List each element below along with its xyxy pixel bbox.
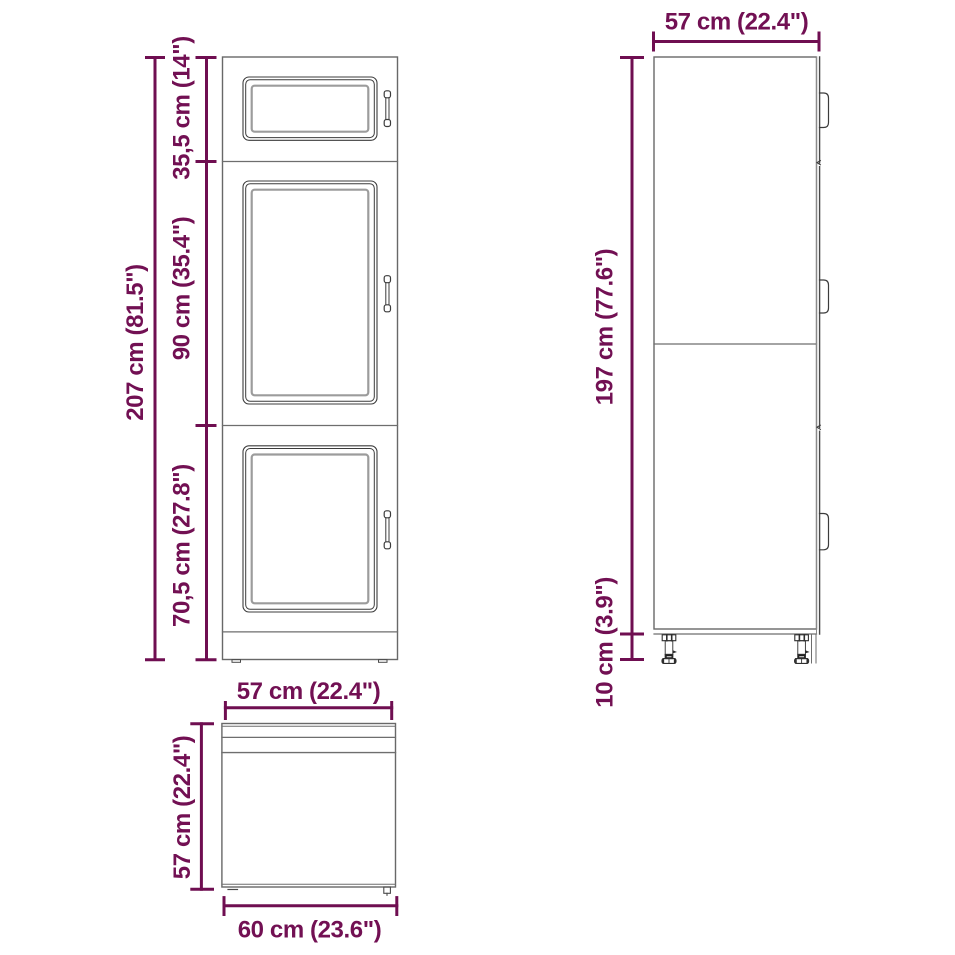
- svg-text:70,5 cm (27.8"): 70,5 cm (27.8"): [169, 464, 196, 627]
- svg-text:57 cm (22.4"): 57 cm (22.4"): [237, 678, 381, 705]
- svg-text:197 cm (77.6"): 197 cm (77.6"): [592, 249, 619, 406]
- svg-text:60 cm (23.6"): 60 cm (23.6"): [238, 917, 382, 944]
- svg-text:10 cm (3.9"): 10 cm (3.9"): [592, 577, 619, 708]
- svg-text:57 cm (22.4"): 57 cm (22.4"): [665, 9, 809, 36]
- svg-text:57 cm (22.4"): 57 cm (22.4"): [169, 736, 196, 880]
- svg-text:207 cm (81.5"): 207 cm (81.5"): [122, 264, 149, 421]
- svg-text:35,5 cm (14"): 35,5 cm (14"): [169, 36, 196, 180]
- svg-text:90 cm (35.4"): 90 cm (35.4"): [169, 217, 196, 361]
